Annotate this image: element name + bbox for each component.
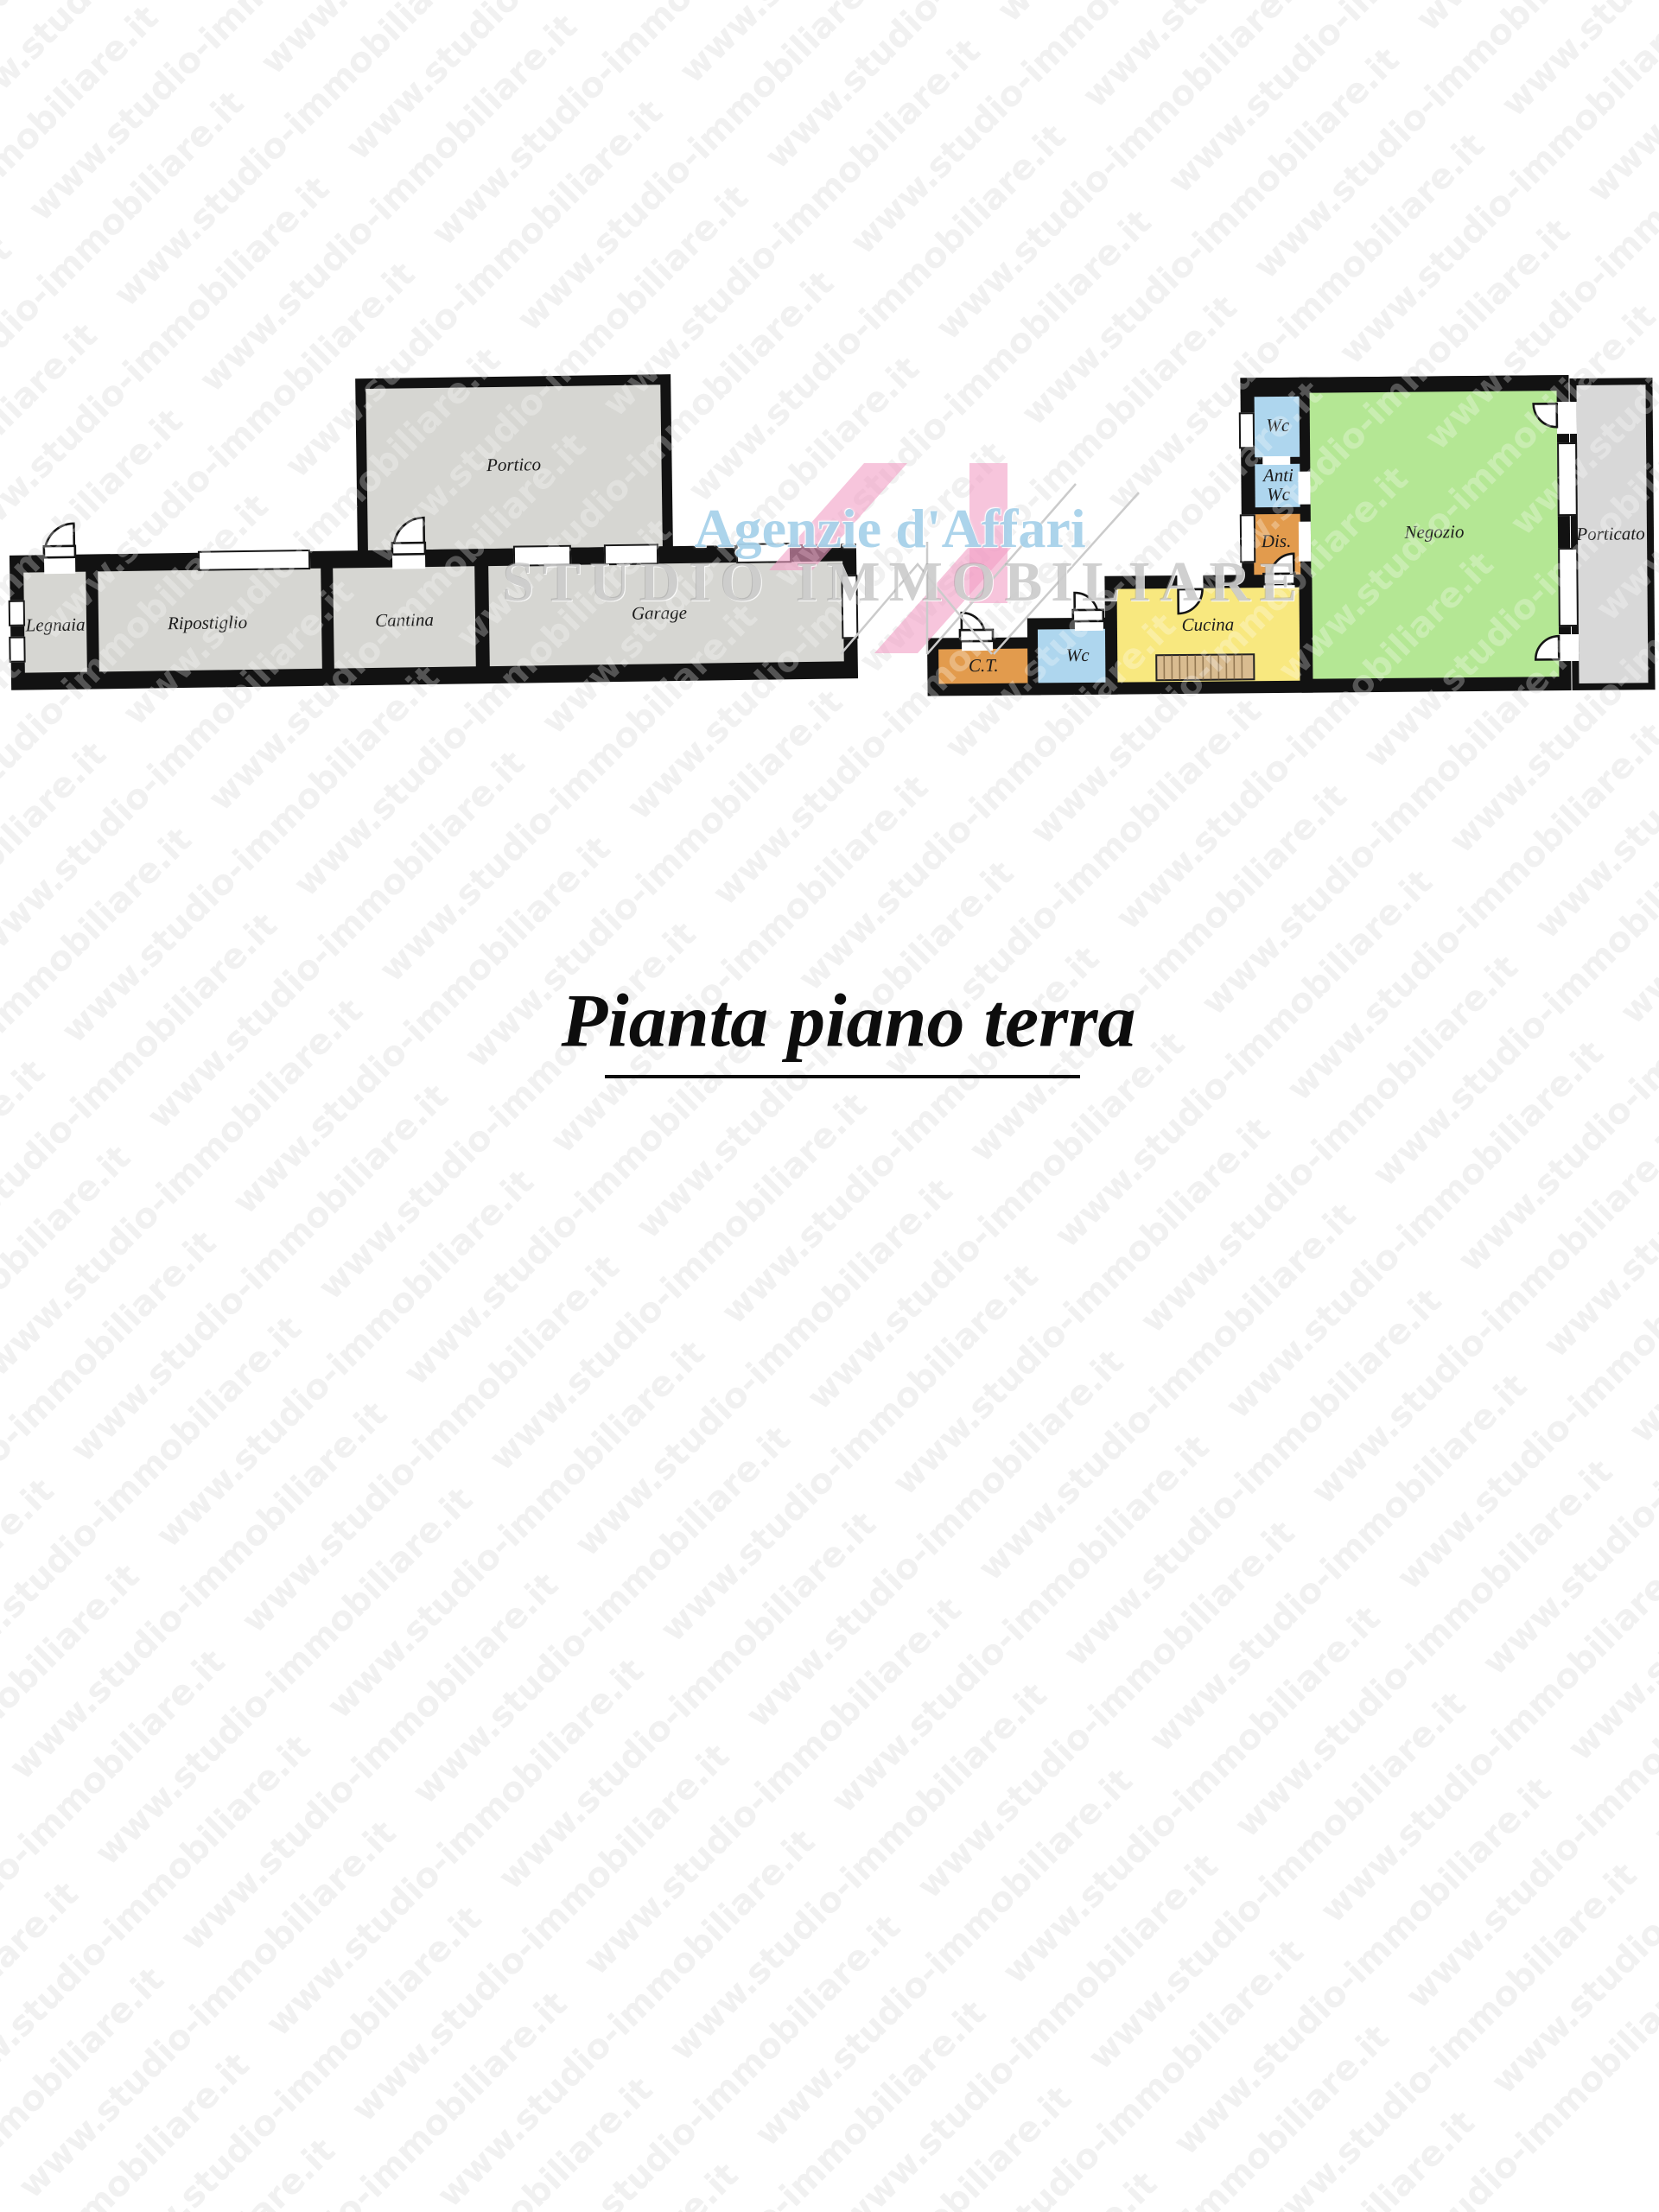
negozio-porticato-window-1 [1557,442,1578,516]
label-wc-top: Wc [1266,416,1289,435]
wc-bottom-door-gap [1075,615,1103,631]
label-negozio: Negozio [1404,522,1464,542]
column-left-window-1 [1239,412,1255,448]
label-dis: Dis. [1262,531,1292,550]
label-ct: C.T. [969,656,999,675]
negozio-porticato-door-bottom [1559,634,1579,661]
ct-door-gap [962,635,993,651]
label-porticato: Porticato [1576,524,1645,543]
wc-antiwc-door-gap [1262,456,1290,465]
negozio-porticato-window-2 [1558,548,1579,626]
label-wc-bottom: Wc [1066,645,1090,664]
logo-name: STUDIO IMMOBILIARE [502,550,1306,615]
negozio-porticato-door-top [1557,402,1577,434]
page-title: Pianta piano terra [562,978,1136,1065]
title-underline [605,1075,1080,1078]
label-cucina: Cucina [1181,614,1234,634]
label-anti-wc: Anti Wc [1255,466,1301,505]
